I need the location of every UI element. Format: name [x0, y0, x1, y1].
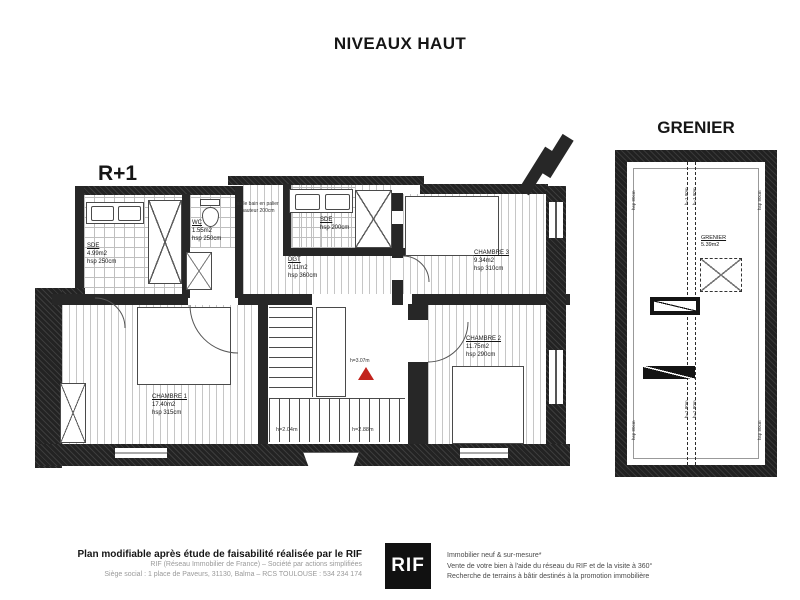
ridge-height-label: h=1.80m [684, 187, 690, 205]
footer-left-block: Plan modifiable après étude de faisabili… [40, 549, 362, 580]
footer-service-line: Immobilier neuf & sur-mesure* [447, 551, 652, 562]
footer-service-line: Vente de votre bien à l'aide du réseau d… [447, 562, 652, 573]
eave-height-label: hsp 80cm [631, 420, 637, 440]
room-label-grenier: GRENIER 5.39m2 [701, 235, 726, 249]
ridge-height-label: h=1.80m [684, 400, 690, 418]
footer-service-line: Recherche de terrains à bâtir destinés à… [447, 572, 652, 583]
plan-sheet: NIVEAUX HAUT R+1 GRENIER [0, 0, 800, 600]
chimney-block [650, 297, 700, 315]
chimney-block [643, 366, 695, 379]
rif-logo: RIF [385, 543, 431, 589]
eave-height-label: hsp 80cm [757, 190, 763, 210]
footer-company-line: RIF (Réseau Immobilier de France) – Soci… [40, 560, 362, 570]
footer-right-block: Immobilier neuf & sur-mesure* Vente de v… [447, 551, 652, 583]
eave-height-label: hsp 80cm [757, 420, 763, 440]
eave-height-label: hsp 80cm [631, 190, 637, 210]
footer-headline: Plan modifiable après étude de faisabili… [40, 549, 362, 560]
ridge-height-label: h=1.80m [692, 400, 698, 418]
footer-address-line: Siège social : 1 place de Paveurs, 31130… [40, 570, 362, 580]
ridge-height-label: h=1.80m [692, 187, 698, 205]
floor-plan-grenier: GRENIER 5.39m2 h=1.80m h=1.80m h=1.80m h… [0, 0, 800, 500]
roof-window-dashed [700, 258, 742, 292]
